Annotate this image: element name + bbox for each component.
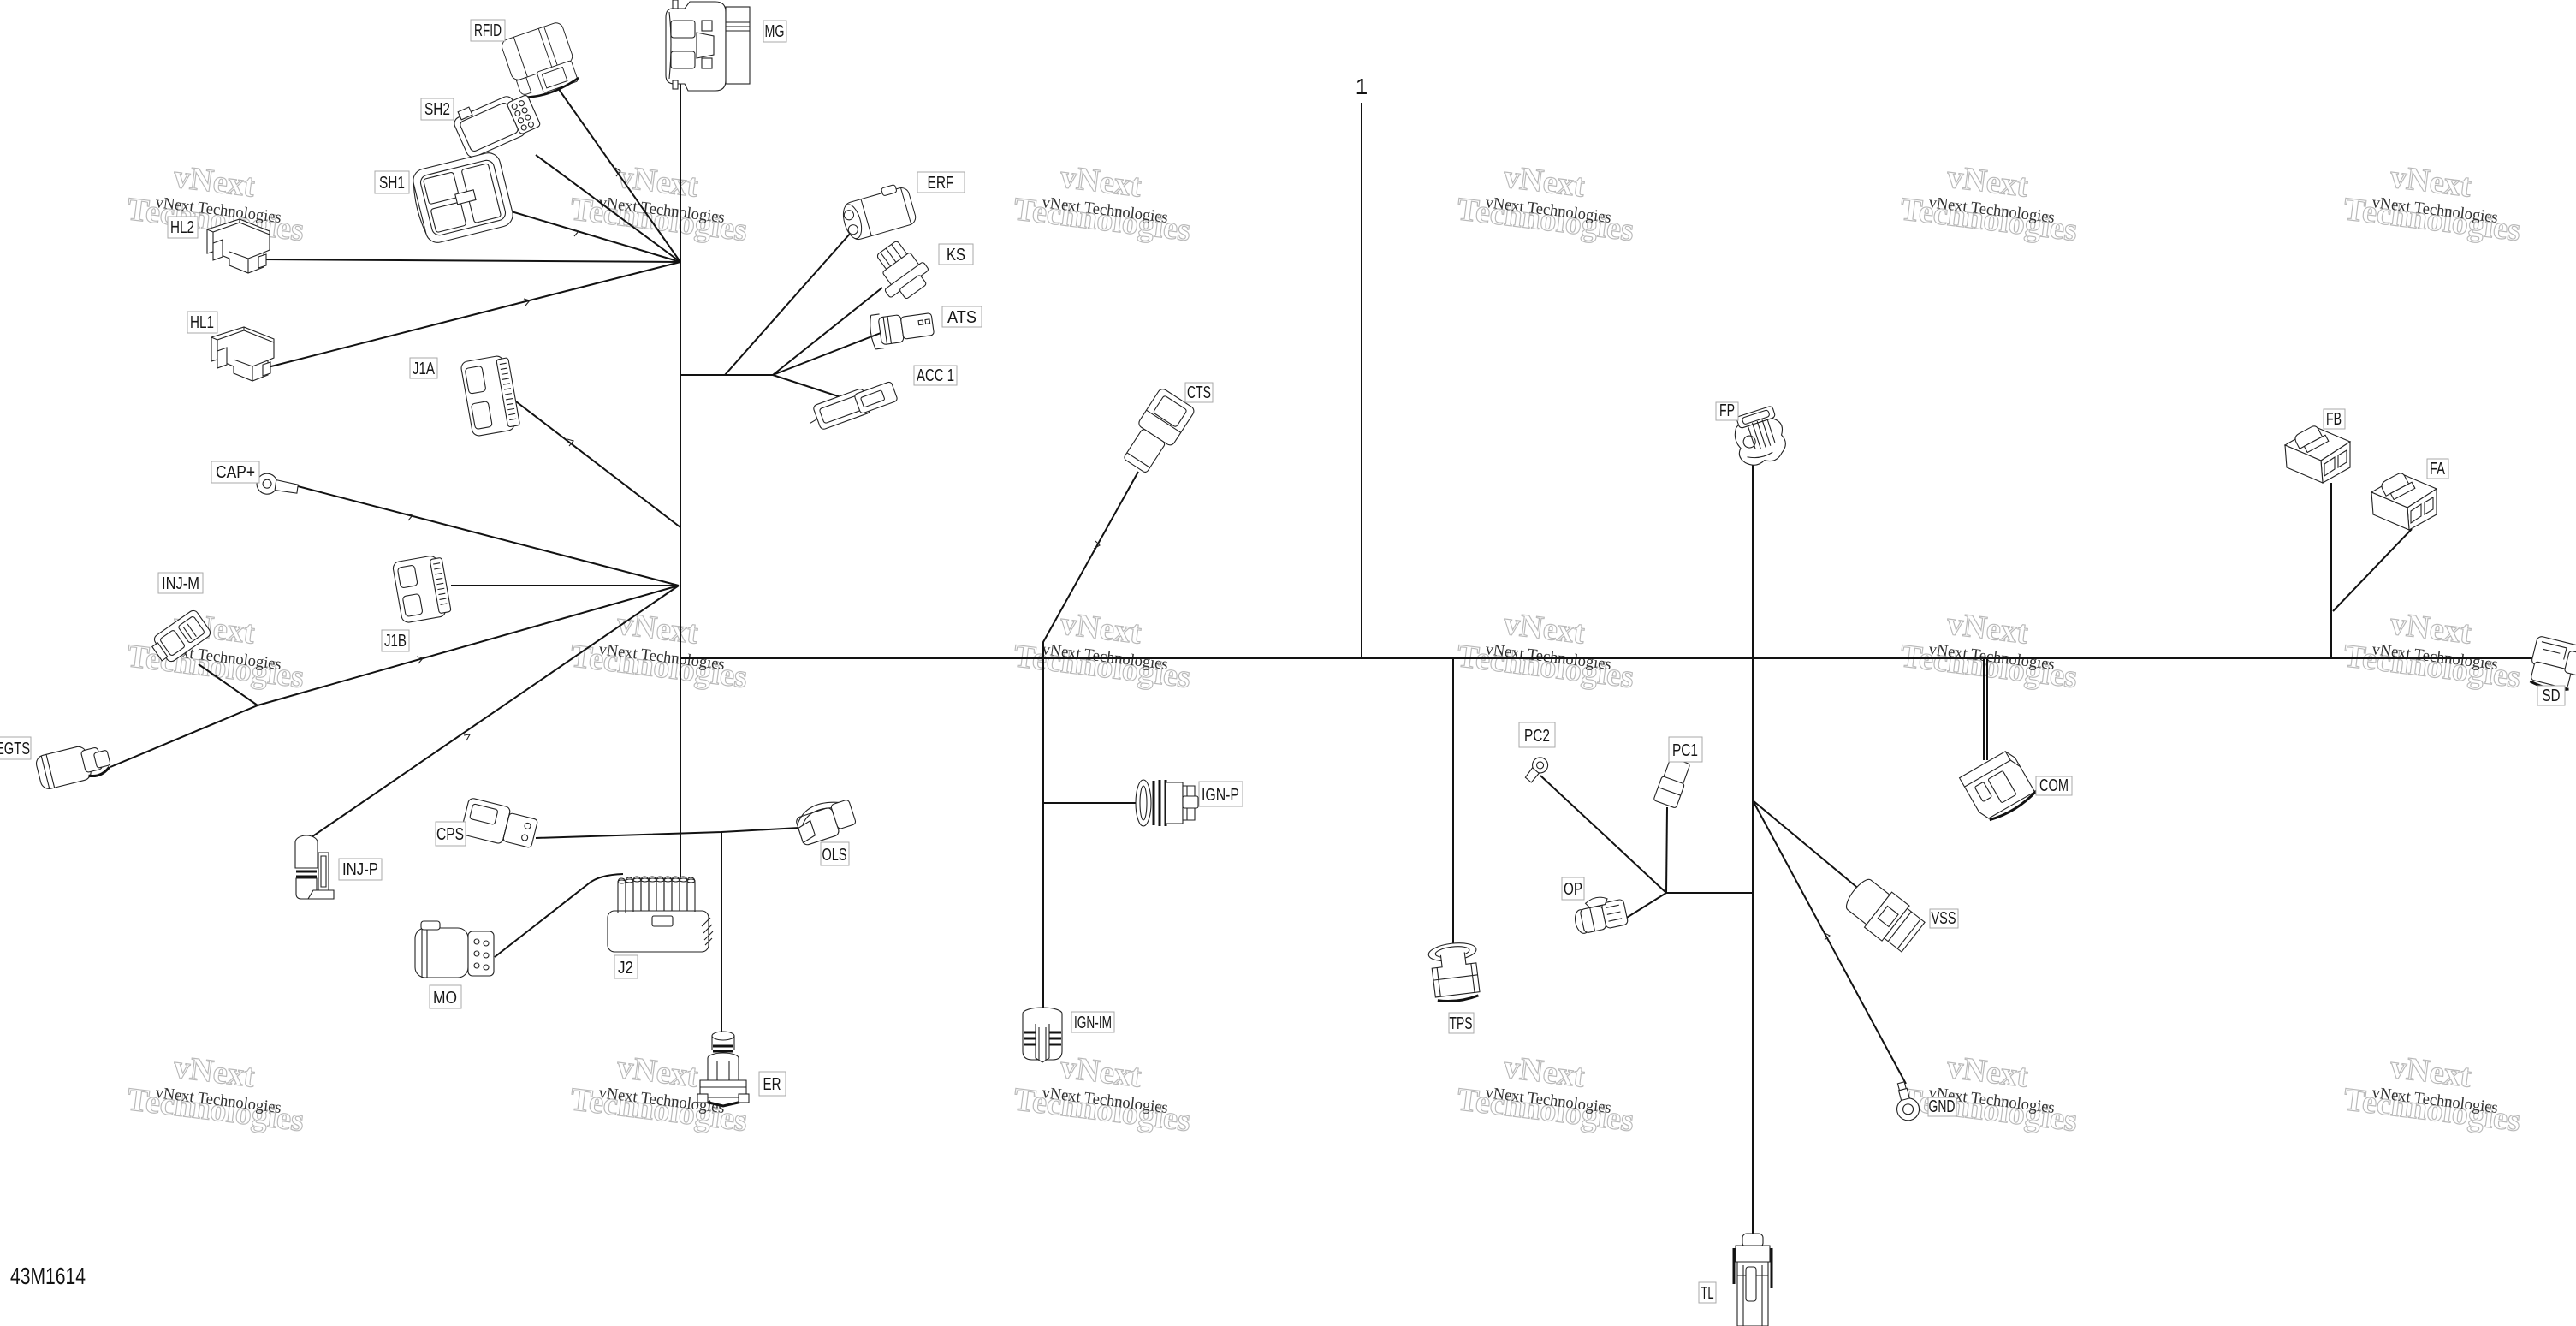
svg-text:KS: KS	[947, 246, 965, 265]
svg-text:TL: TL	[1701, 1284, 1714, 1303]
svg-text:J2: J2	[618, 959, 633, 978]
svg-text:FA: FA	[2430, 460, 2445, 479]
svg-text:ATS: ATS	[947, 308, 976, 327]
svg-text:1: 1	[1356, 74, 1368, 99]
svg-text:SD: SD	[2543, 687, 2561, 705]
svg-text:ER: ER	[763, 1075, 781, 1094]
svg-text:MG: MG	[765, 22, 785, 41]
svg-text:FB: FB	[2326, 410, 2342, 429]
svg-text:PC1: PC1	[1672, 741, 1698, 760]
svg-text:MO: MO	[433, 989, 457, 1008]
svg-text:IGN-P: IGN-P	[1202, 786, 1239, 805]
svg-text:PC2: PC2	[1524, 727, 1550, 746]
svg-text:HL1: HL1	[190, 313, 214, 332]
svg-text:INJ-P: INJ-P	[342, 860, 378, 879]
svg-text:FP: FP	[1719, 401, 1735, 420]
svg-text:EGTS: EGTS	[0, 740, 30, 758]
svg-text:SH1: SH1	[379, 174, 405, 193]
svg-text:HL2: HL2	[170, 218, 194, 237]
svg-text:VSS: VSS	[1932, 909, 1956, 928]
svg-text:SH2: SH2	[424, 100, 450, 119]
svg-text:CAP+: CAP+	[216, 463, 255, 482]
svg-text:OLS: OLS	[822, 846, 847, 865]
svg-text:J1A: J1A	[413, 360, 435, 378]
svg-text:RFID: RFID	[474, 21, 502, 40]
svg-text:CTS: CTS	[1187, 384, 1211, 402]
svg-text:COM: COM	[2039, 776, 2069, 795]
svg-text:J1B: J1B	[384, 632, 407, 651]
svg-text:ACC 1: ACC 1	[917, 366, 954, 385]
svg-text:43M1614: 43M1614	[10, 1263, 86, 1289]
svg-text:TPS: TPS	[1450, 1014, 1473, 1033]
svg-text:CPS: CPS	[436, 825, 464, 844]
svg-text:ERF: ERF	[928, 174, 954, 193]
svg-text:INJ-M: INJ-M	[162, 574, 199, 593]
svg-text:GND: GND	[1929, 1097, 1956, 1116]
svg-text:OP: OP	[1564, 880, 1582, 899]
svg-text:IGN-IM: IGN-IM	[1074, 1014, 1112, 1032]
